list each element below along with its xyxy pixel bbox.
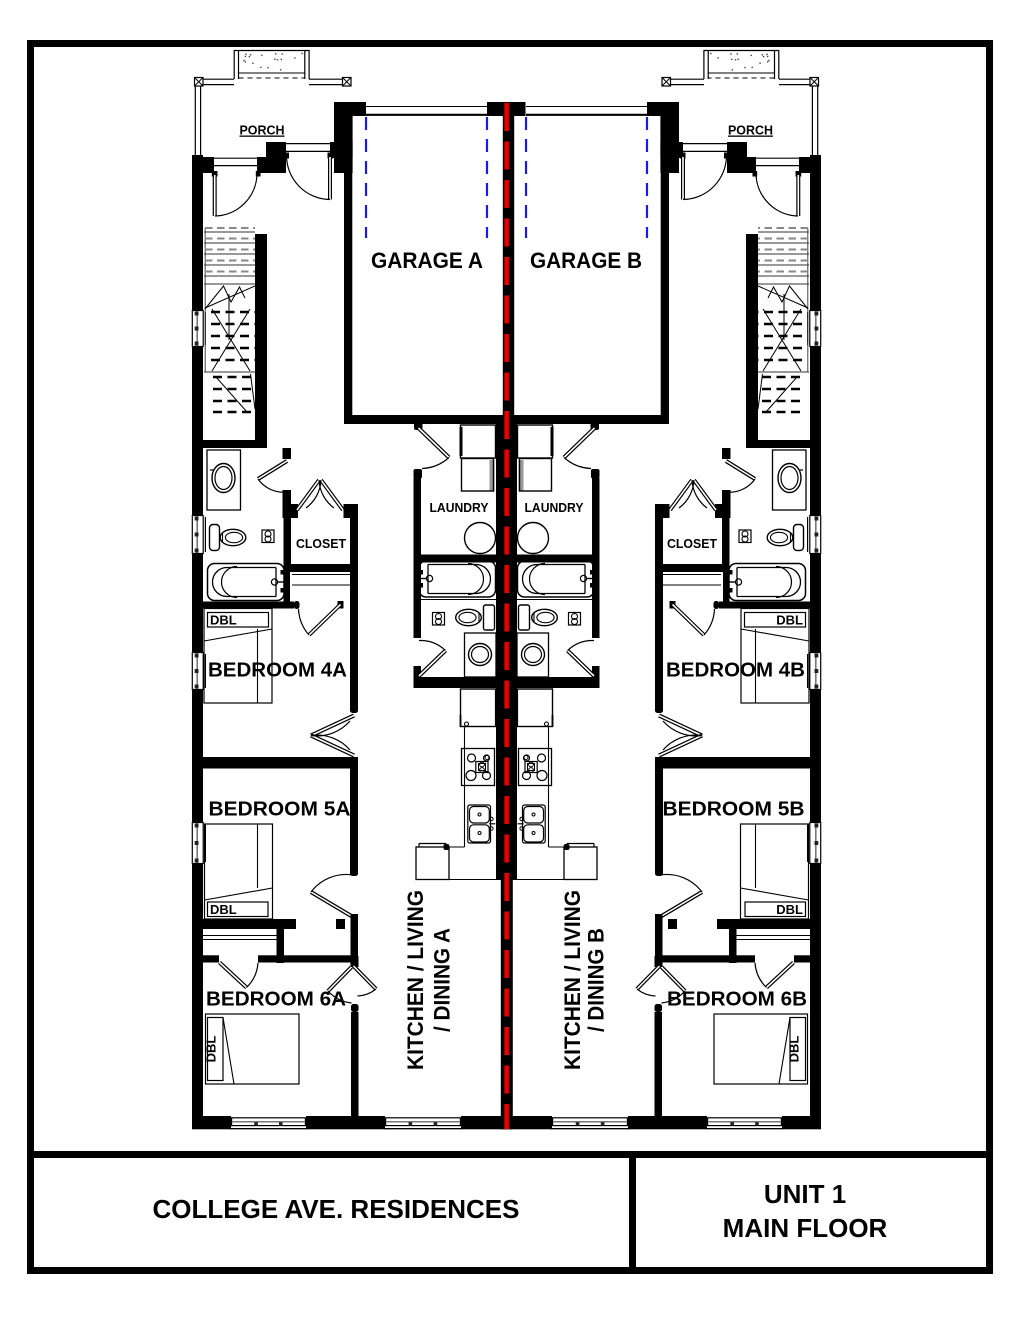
svg-text:LAUNDRY: LAUNDRY bbox=[430, 500, 489, 515]
svg-text:BEDROOM 5B: BEDROOM 5B bbox=[663, 799, 805, 821]
svg-text:MAIN FLOOR: MAIN FLOOR bbox=[723, 1213, 888, 1243]
svg-text:DBL: DBL bbox=[210, 613, 237, 628]
svg-text:DBL: DBL bbox=[204, 1036, 219, 1063]
svg-text:CLOSET: CLOSET bbox=[296, 536, 346, 551]
svg-text:CLOSET: CLOSET bbox=[667, 536, 717, 551]
svg-text:BEDROOM 5A: BEDROOM 5A bbox=[209, 799, 351, 821]
svg-text:BEDROOM 4B: BEDROOM 4B bbox=[666, 660, 805, 682]
svg-text:LAUNDRY: LAUNDRY bbox=[525, 500, 584, 515]
svg-text:DBL: DBL bbox=[776, 902, 803, 917]
svg-text:/ DINING B: / DINING B bbox=[584, 928, 609, 1032]
svg-text:BEDROOM 6B: BEDROOM 6B bbox=[667, 989, 807, 1011]
svg-text:BEDROOM 6A: BEDROOM 6A bbox=[206, 989, 346, 1011]
svg-text:UNIT 1: UNIT 1 bbox=[764, 1179, 846, 1209]
svg-text:DBL: DBL bbox=[776, 613, 803, 628]
svg-text:/ DINING A: / DINING A bbox=[430, 928, 455, 1032]
svg-text:KITCHEN / LIVING: KITCHEN / LIVING bbox=[403, 890, 428, 1070]
svg-text:DBL: DBL bbox=[210, 902, 237, 917]
svg-text:GARAGE A: GARAGE A bbox=[371, 248, 483, 273]
svg-text:DBL: DBL bbox=[787, 1036, 802, 1063]
svg-text:GARAGE B: GARAGE B bbox=[530, 248, 642, 273]
svg-text:PORCH: PORCH bbox=[240, 123, 285, 138]
svg-text:BEDROOM 4A: BEDROOM 4A bbox=[208, 660, 347, 682]
svg-text:COLLEGE AVE. RESIDENCES: COLLEGE AVE. RESIDENCES bbox=[153, 1194, 520, 1224]
svg-text:PORCH: PORCH bbox=[728, 123, 773, 138]
svg-text:KITCHEN / LIVING: KITCHEN / LIVING bbox=[560, 890, 585, 1070]
